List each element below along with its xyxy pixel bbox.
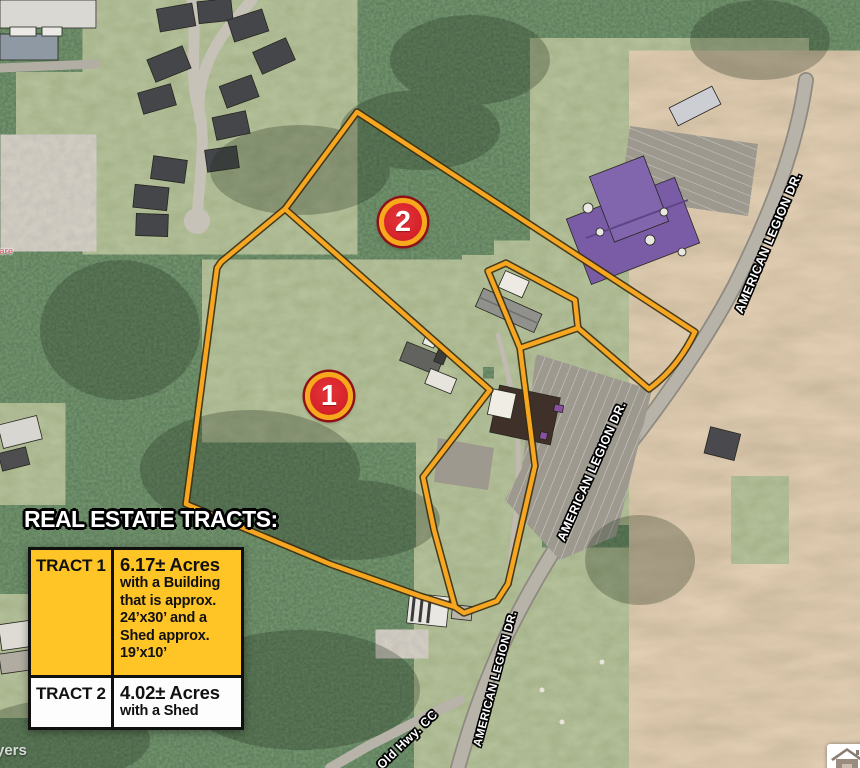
tract-2-desc-line: with a Shed <box>120 703 239 721</box>
table-row-tract-2: TRACT 2 4.02± Acres with a Shed <box>31 678 241 727</box>
tract-1-desc-line: 19’x10’ <box>120 645 239 663</box>
tracts-table: TRACT 1 6.17± Acres with a Building that… <box>28 547 244 730</box>
aerial-real-estate-map: 2 1 AMERICAN LEGION DR. AMERICAN LEGION … <box>0 0 860 768</box>
tract-2-description: 4.02± Acres with a Shed <box>114 678 241 727</box>
tract-1-desc-line: that is approx. <box>120 593 239 611</box>
realtor-house-logo <box>827 744 860 768</box>
tract-2-name: TRACT 2 <box>31 678 114 727</box>
tract-1-description: 6.17± Acres with a Building that is appr… <box>114 550 241 675</box>
watermark-text: yers <box>0 742 27 759</box>
tract-1-name: TRACT 1 <box>31 550 114 675</box>
tract-1-marker: 1 <box>305 372 353 420</box>
tracts-panel-header: REAL ESTATE TRACTS: <box>24 506 278 533</box>
tract-1-desc-line: Shed approx. <box>120 628 239 646</box>
tract-2-acres: 4.02± Acres <box>120 682 239 703</box>
tract-1-desc-line: 24’x30’ and a <box>120 610 239 628</box>
tract-1-desc-line: with a Building <box>120 575 239 593</box>
tract-2-marker: 2 <box>379 198 427 246</box>
tract-1-acres: 6.17± Acres <box>120 554 239 575</box>
map-place-label: Care <box>0 246 13 256</box>
table-row-tract-1: TRACT 1 6.17± Acres with a Building that… <box>31 550 241 678</box>
house-icon <box>830 747 860 768</box>
